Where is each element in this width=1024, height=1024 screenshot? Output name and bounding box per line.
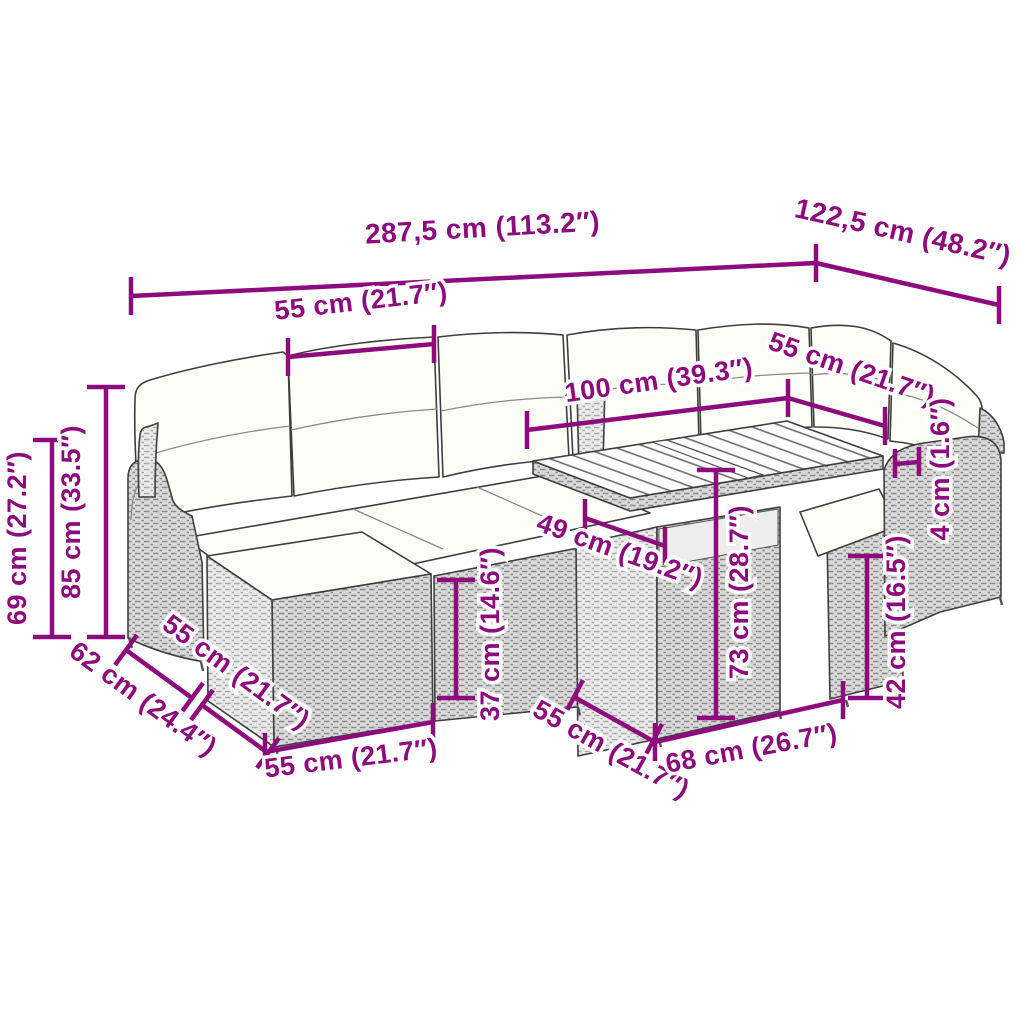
back-pillow	[438, 333, 569, 477]
dim-back-height-label: 85 cm (33.5″)	[56, 425, 86, 599]
dim-table-height-label: 73 cm (28.7″)	[724, 505, 754, 679]
dim-tabletop-thickness-label: 4 cm (1.6″)	[925, 398, 955, 541]
dim-total-width-label: 287,5 cm (113.2″)	[364, 205, 601, 249]
dim-seat-height-label: 37 cm (14.6″)	[475, 547, 505, 721]
dim-total-depth: 122,5 cm (48.2″)	[792, 192, 1014, 324]
left-arm-post	[138, 423, 158, 497]
dim-table-base-height-label: 42 cm (16.5″)	[881, 535, 911, 709]
product-dimension-diagram: 287,5 cm (113.2″) 122,5 cm (48.2″) 55 cm…	[0, 0, 1024, 1024]
dim-total-width: 287,5 cm (113.2″)	[131, 205, 816, 315]
dim-arm-height-label: 69 cm (27.2″)	[2, 451, 32, 625]
dim-back-height-line	[87, 387, 125, 637]
dim-back-height: 85 cm (33.5″)	[56, 387, 125, 637]
diagram-svg: 287,5 cm (113.2″) 122,5 cm (48.2″) 55 cm…	[0, 0, 1024, 1024]
dim-total-width-line	[131, 244, 816, 315]
dim-total-depth-label: 122,5 cm (48.2″)	[792, 192, 1014, 271]
dim-total-depth-line	[816, 263, 999, 324]
